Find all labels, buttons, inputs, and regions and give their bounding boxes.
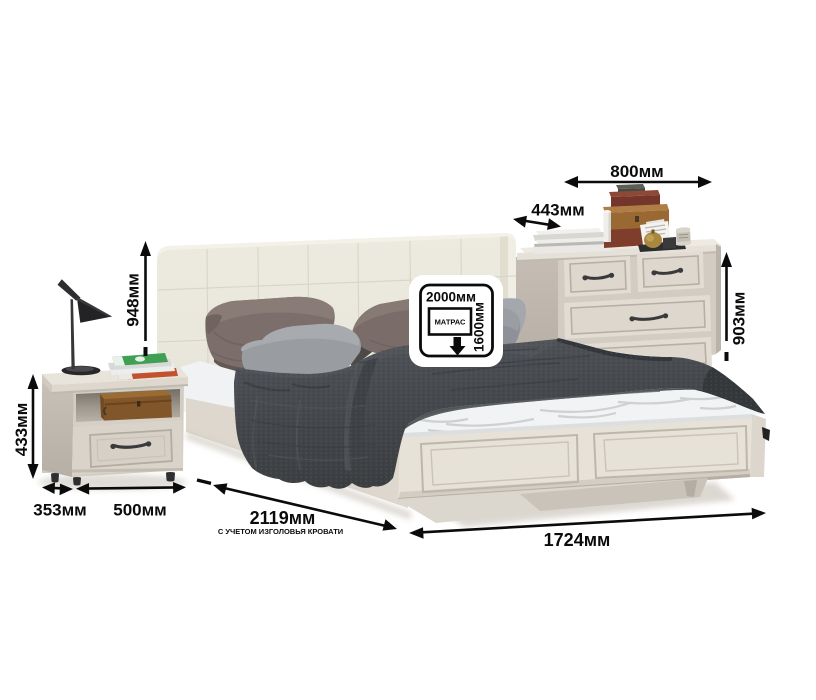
svg-text:2119мм: 2119мм <box>250 508 316 528</box>
svg-text:500мм: 500мм <box>113 501 167 520</box>
svg-text:353мм: 353мм <box>33 501 87 520</box>
svg-text:2000мм: 2000мм <box>426 290 476 305</box>
svg-text:443мм: 443мм <box>531 201 585 220</box>
svg-text:С УЧЕТОМ ИЗГОЛОВЬЯ КРОВАТИ: С УЧЕТОМ ИЗГОЛОВЬЯ КРОВАТИ <box>218 527 343 536</box>
svg-text:МАТРАС: МАТРАС <box>435 318 466 327</box>
svg-text:948мм: 948мм <box>124 273 143 327</box>
svg-text:800мм: 800мм <box>610 162 664 181</box>
svg-text:903мм: 903мм <box>730 292 749 346</box>
svg-text:433мм: 433мм <box>12 403 31 457</box>
svg-text:1600мм: 1600мм <box>472 302 487 352</box>
svg-text:1724мм: 1724мм <box>544 530 611 550</box>
